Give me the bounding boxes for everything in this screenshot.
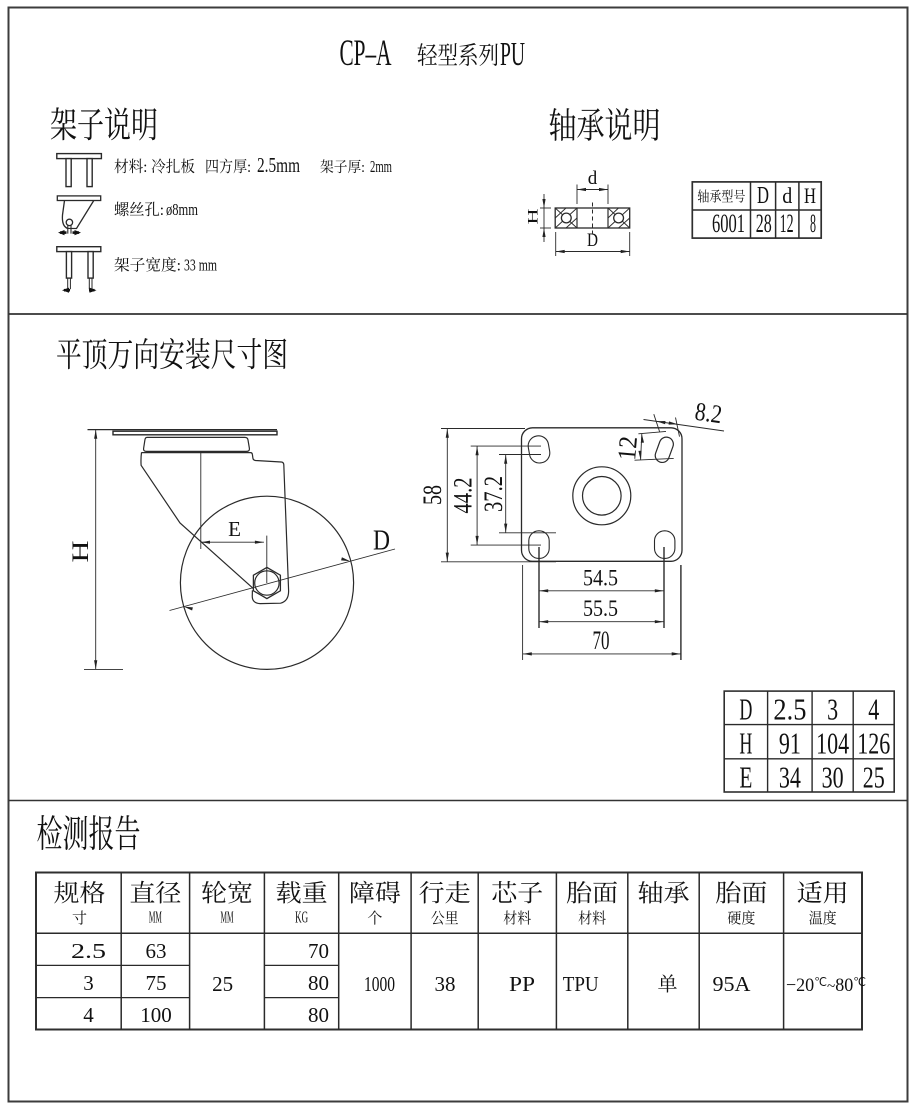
svg-text:ø8mm: ø8mm — [166, 200, 198, 219]
svg-text:2.5: 2.5 — [773, 692, 806, 727]
svg-text:3: 3 — [827, 692, 838, 727]
svg-text:直径: 直径 — [129, 875, 181, 910]
svg-text:H: H — [804, 183, 816, 208]
svg-text:轴承说明: 轴承说明 — [549, 98, 661, 149]
svg-text:2mm: 2mm — [370, 157, 392, 176]
svg-text:30: 30 — [822, 760, 844, 795]
svg-text:75: 75 — [146, 971, 167, 995]
svg-text:TPU: TPU — [563, 972, 599, 996]
svg-text:H: H — [68, 541, 93, 563]
svg-text:4: 4 — [83, 1003, 94, 1027]
svg-text:MM: MM — [149, 908, 162, 927]
svg-text:25: 25 — [863, 760, 885, 795]
svg-text:d: d — [782, 183, 792, 208]
svg-text:四方厚:: 四方厚: — [205, 154, 251, 177]
svg-text:58: 58 — [418, 485, 447, 505]
svg-text:100: 100 — [140, 1003, 172, 1027]
svg-text:轮宽: 轮宽 — [201, 875, 253, 910]
svg-text:28: 28 — [756, 209, 772, 238]
svg-text:材料: 材料 — [578, 907, 606, 929]
svg-text:4: 4 — [868, 692, 879, 727]
svg-text:行走: 行走 — [419, 875, 471, 910]
svg-text:70: 70 — [593, 626, 610, 655]
svg-text:H: H — [739, 726, 752, 761]
svg-text:12: 12 — [612, 435, 643, 461]
svg-text:1000: 1000 — [364, 972, 395, 996]
svg-text:80: 80 — [308, 971, 329, 995]
svg-text:D: D — [739, 692, 752, 727]
svg-text:CP–A: CP–A — [340, 33, 392, 74]
svg-text:33 mm: 33 mm — [184, 256, 217, 275]
svg-text:平顶万向安装尺寸图: 平顶万向安装尺寸图 — [56, 328, 288, 377]
svg-text:38: 38 — [435, 972, 456, 996]
svg-text:温度: 温度 — [809, 907, 837, 929]
svg-text:螺丝孔:: 螺丝孔: — [114, 197, 164, 220]
svg-text:架子宽度:: 架子宽度: — [114, 253, 181, 276]
svg-text:公里: 公里 — [431, 907, 459, 929]
svg-text:80: 80 — [308, 1003, 329, 1027]
svg-text:障碍: 障碍 — [349, 875, 401, 910]
svg-text:PP: PP — [509, 972, 535, 996]
svg-text:34: 34 — [779, 760, 801, 795]
svg-text:D: D — [757, 183, 769, 209]
svg-text:适用: 适用 — [797, 875, 849, 910]
svg-text:E: E — [739, 760, 752, 795]
svg-text:d: d — [588, 168, 598, 189]
svg-text:95A: 95A — [713, 972, 752, 996]
svg-text:63: 63 — [146, 939, 167, 963]
svg-text:规格: 规格 — [54, 875, 106, 910]
svg-text:芯子: 芯子 — [491, 875, 543, 910]
svg-text:−20℃~80℃: −20℃~80℃ — [786, 975, 866, 996]
svg-text:检测报告: 检测报告 — [37, 803, 141, 858]
svg-text:54.5: 54.5 — [583, 566, 618, 591]
svg-text:胎面: 胎面 — [715, 875, 767, 910]
svg-text:轻型系列: 轻型系列 — [417, 36, 499, 72]
svg-text:单: 单 — [658, 968, 678, 997]
svg-text:轴承: 轴承 — [638, 875, 690, 910]
svg-text:寸: 寸 — [72, 907, 87, 929]
svg-text:架子说明: 架子说明 — [50, 98, 158, 149]
svg-text:91: 91 — [779, 726, 801, 761]
svg-text:硬度: 硬度 — [727, 907, 755, 929]
svg-text:12: 12 — [780, 209, 794, 238]
svg-text:胎面: 胎面 — [566, 875, 618, 910]
svg-text:D: D — [587, 230, 598, 251]
svg-text:载重: 载重 — [276, 875, 328, 910]
svg-text:6001: 6001 — [712, 209, 745, 238]
svg-text:架子厚:: 架子厚: — [320, 156, 365, 177]
svg-text:2.5mm: 2.5mm — [257, 153, 300, 177]
svg-text:轴承型号: 轴承型号 — [697, 186, 745, 207]
svg-text:D: D — [373, 525, 390, 557]
svg-text:25: 25 — [212, 972, 233, 996]
svg-text:8.2: 8.2 — [693, 397, 724, 429]
svg-text:70: 70 — [308, 939, 329, 963]
svg-text:55.5: 55.5 — [583, 596, 618, 621]
svg-text:PU: PU — [500, 36, 525, 73]
svg-text:材料: 冷扎板: 材料: 冷扎板 — [114, 154, 195, 177]
svg-text:H: H — [526, 208, 542, 224]
svg-text:3: 3 — [83, 971, 94, 995]
svg-text:8: 8 — [810, 209, 816, 238]
svg-text:104: 104 — [816, 726, 849, 761]
svg-text:44.2: 44.2 — [449, 478, 478, 514]
svg-text:2.5: 2.5 — [71, 939, 106, 963]
svg-text:KG: KG — [295, 908, 308, 927]
svg-text:材料: 材料 — [503, 907, 531, 929]
svg-text:MM: MM — [221, 908, 234, 927]
svg-text:37.2: 37.2 — [479, 476, 508, 512]
svg-text:126: 126 — [857, 726, 890, 761]
svg-text:个: 个 — [367, 907, 382, 929]
svg-text:E: E — [228, 517, 241, 541]
